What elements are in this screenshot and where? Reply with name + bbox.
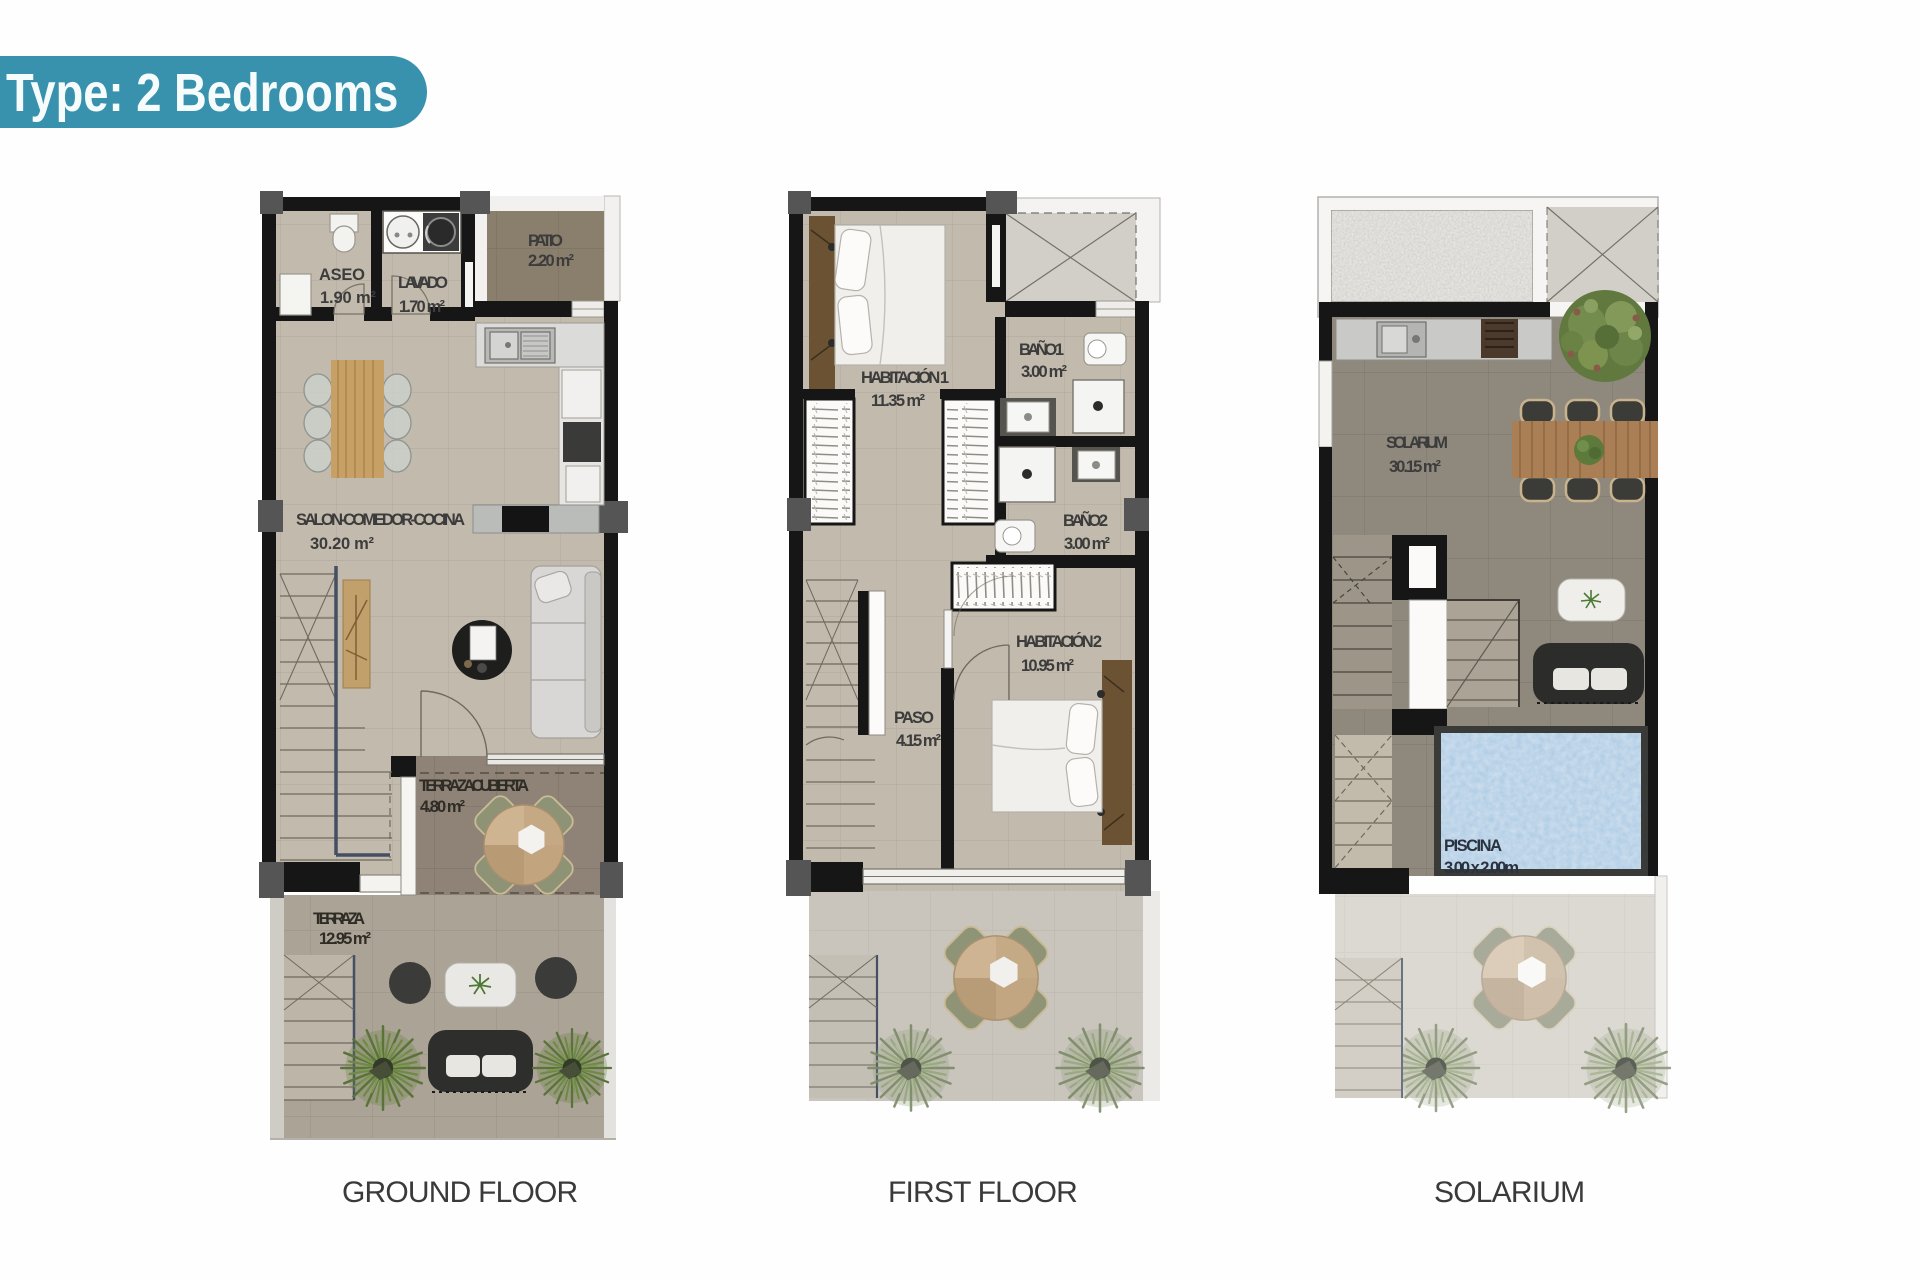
svg-text:3.00 m²: 3.00 m² bbox=[1064, 535, 1111, 553]
svg-text:2.20 m²: 2.20 m² bbox=[528, 252, 575, 270]
svg-text:3.00 m²: 3.00 m² bbox=[1021, 363, 1068, 381]
svg-text:30.20 m²: 30.20 m² bbox=[310, 535, 375, 553]
svg-text:12.95 m²: 12.95 m² bbox=[319, 930, 372, 948]
svg-text:1.70 m²: 1.70 m² bbox=[399, 298, 446, 316]
svg-text:BAÑO 1: BAÑO 1 bbox=[1019, 339, 1064, 359]
svg-text:HABITACIÓN 1: HABITACIÓN 1 bbox=[861, 368, 949, 387]
svg-text:ASEO: ASEO bbox=[319, 266, 365, 284]
svg-text:TERRAZA CUBIERTA: TERRAZA CUBIERTA bbox=[419, 777, 529, 795]
svg-text:4.80 m²: 4.80 m² bbox=[420, 798, 466, 816]
svg-text:SOLARIUM: SOLARIUM bbox=[1386, 434, 1448, 452]
svg-text:PATIO: PATIO bbox=[528, 232, 563, 250]
svg-text:30.15 m²: 30.15 m² bbox=[1389, 458, 1442, 476]
svg-text:10.95 m²: 10.95 m² bbox=[1021, 657, 1075, 675]
svg-text:BAÑO 2: BAÑO 2 bbox=[1063, 510, 1108, 530]
svg-text:4.15 m²: 4.15 m² bbox=[896, 732, 942, 750]
svg-text:SALON-COMEDOR-COCINA: SALON-COMEDOR-COCINA bbox=[296, 511, 465, 529]
svg-text:HABITACIÓN 2: HABITACIÓN 2 bbox=[1016, 632, 1102, 651]
svg-text:TERRAZA: TERRAZA bbox=[313, 910, 365, 928]
svg-text:PISCINA: PISCINA bbox=[1444, 837, 1502, 855]
svg-text:LAVADO: LAVADO bbox=[398, 274, 448, 292]
svg-text:11.35 m²: 11.35 m² bbox=[871, 392, 926, 410]
svg-text:1.90 m²: 1.90 m² bbox=[320, 289, 377, 307]
svg-text:3.00 x 2.00m: 3.00 x 2.00m bbox=[1444, 859, 1519, 877]
svg-text:PASO: PASO bbox=[894, 709, 934, 727]
